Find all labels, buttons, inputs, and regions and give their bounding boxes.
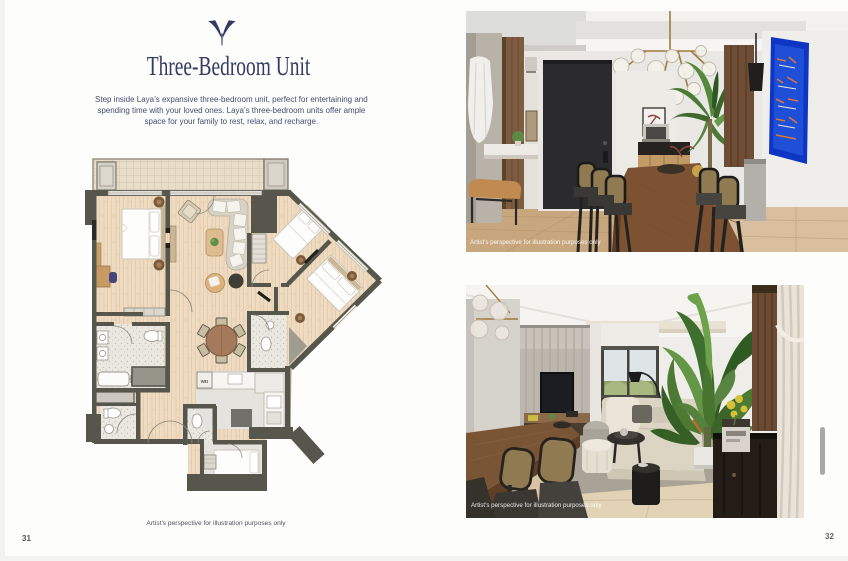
svg-text:Artist’s perspective for illus: Artist’s perspective for illustration pu… — [471, 502, 602, 509]
svg-text:Artist’s perspective for illus: Artist’s perspective for illustration pu… — [470, 239, 601, 246]
svg-text:WD: WD — [201, 379, 209, 384]
